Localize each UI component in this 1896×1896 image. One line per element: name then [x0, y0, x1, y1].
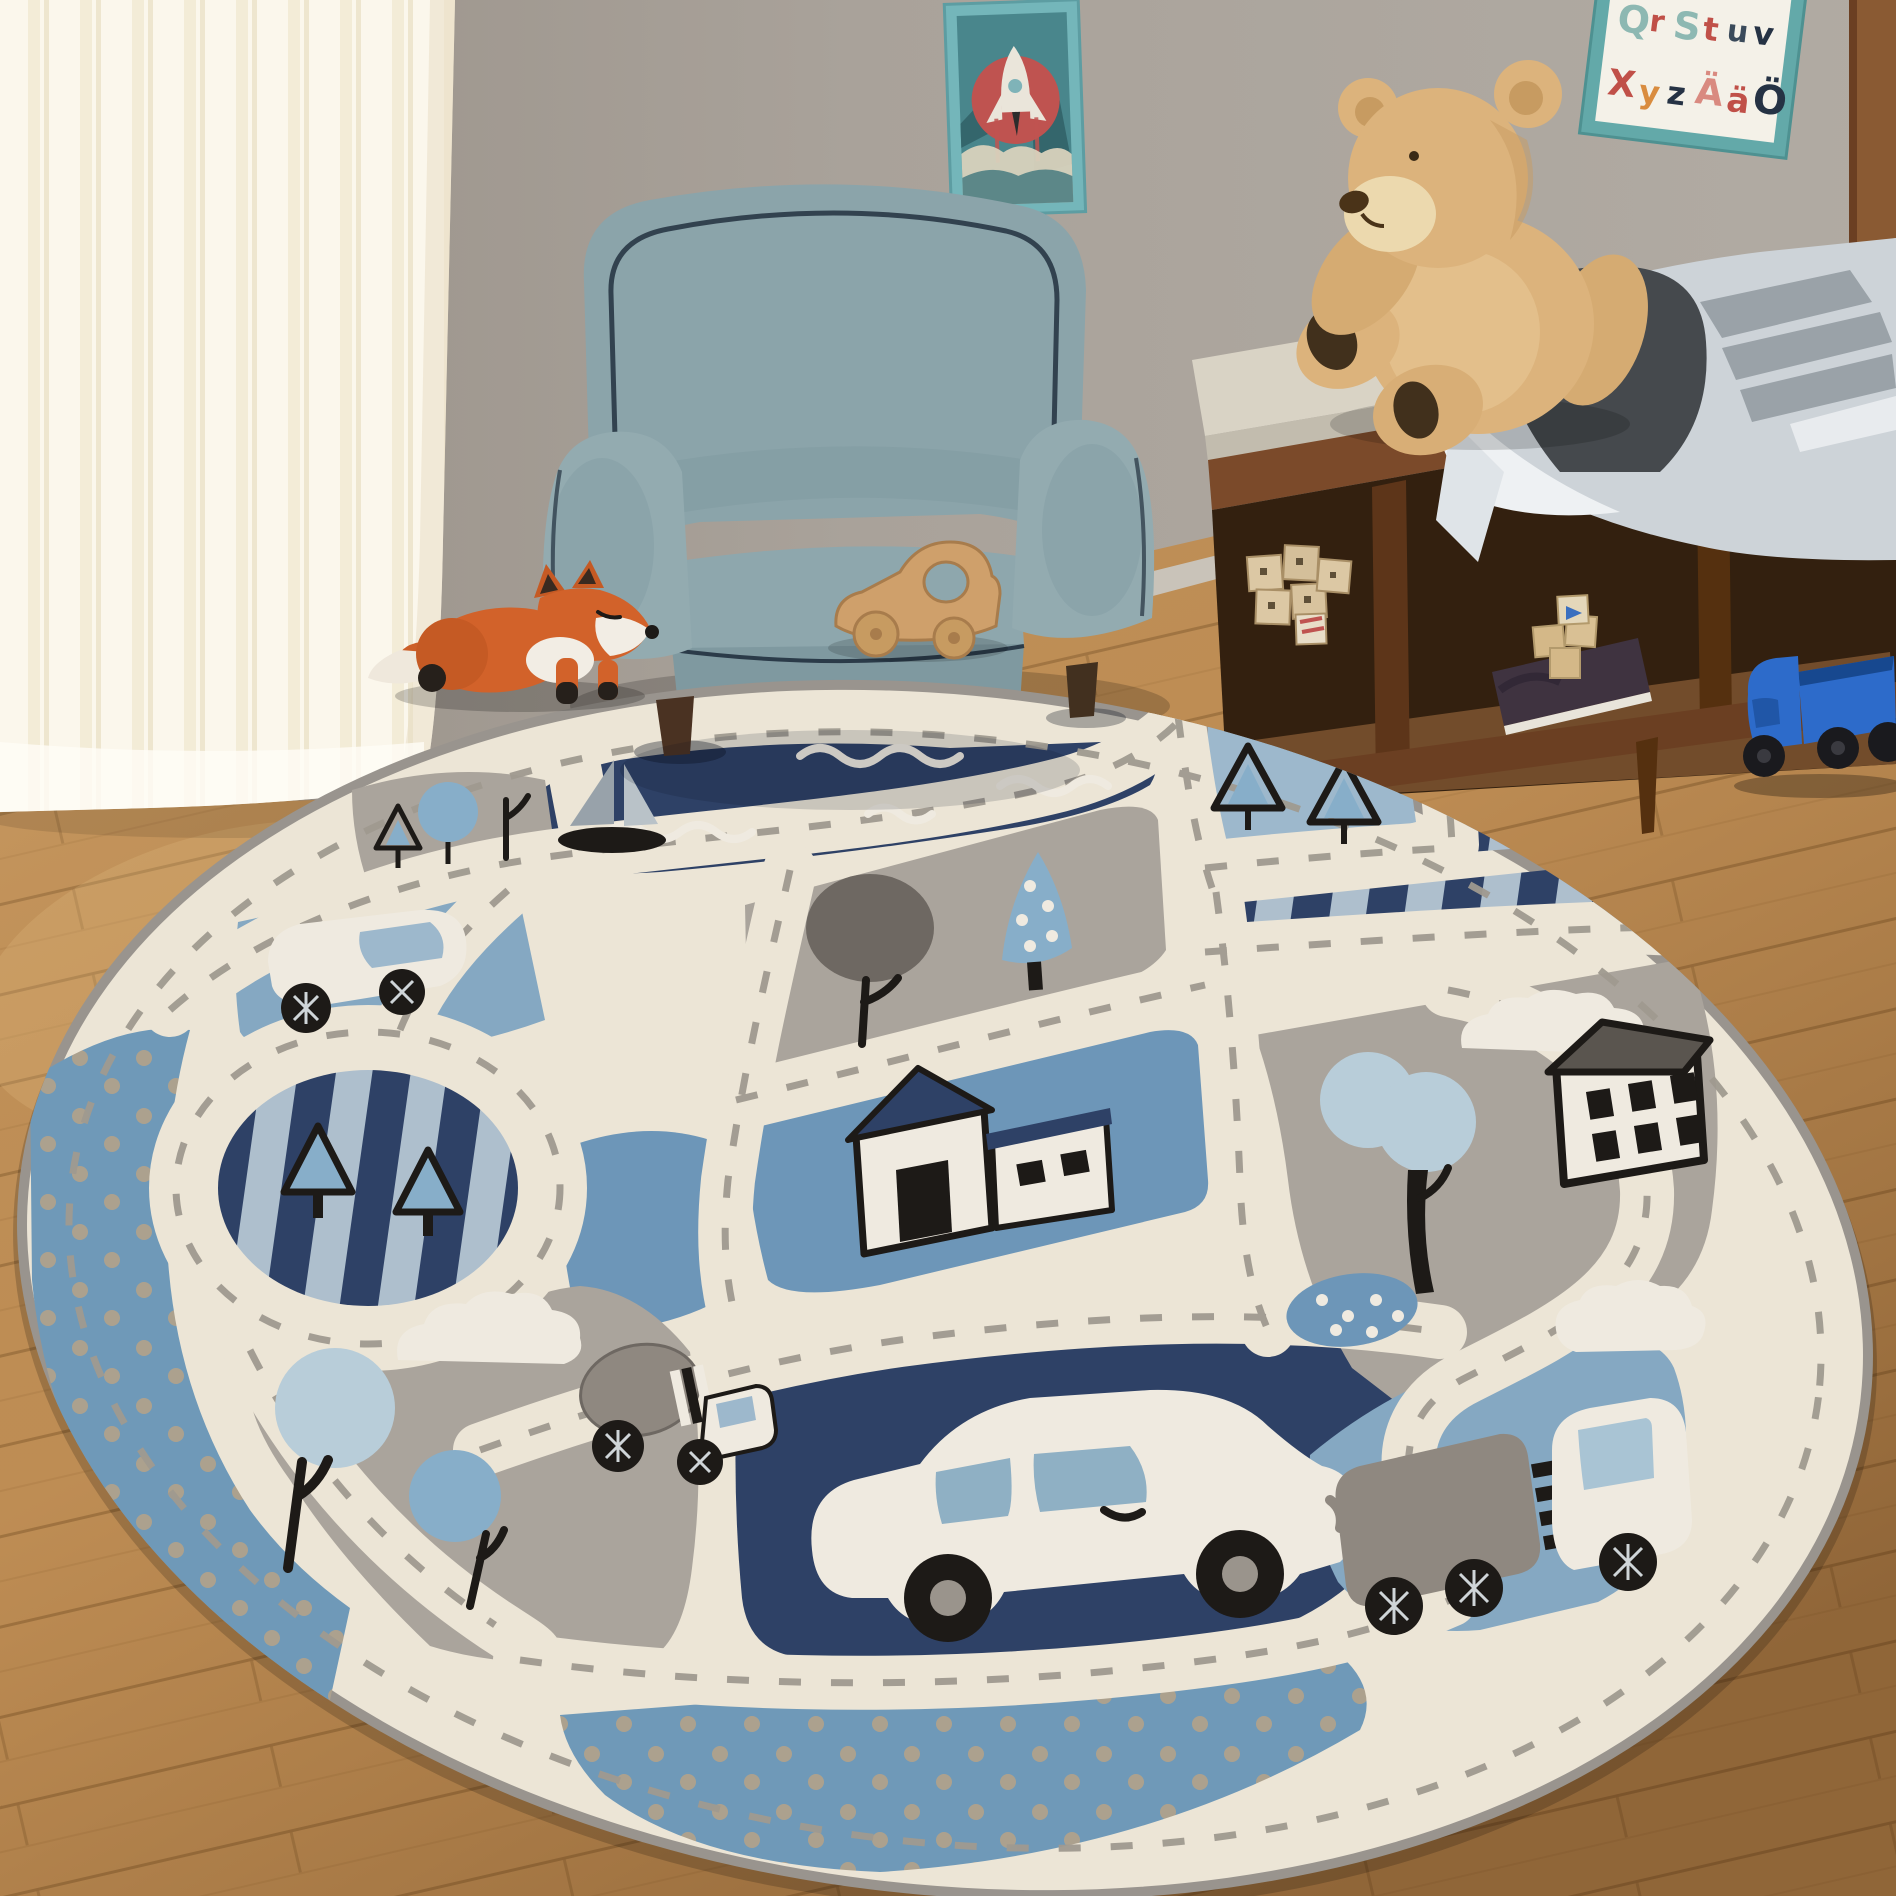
round-tree-icon — [409, 1450, 501, 1542]
alphabet-letter: ä — [1724, 80, 1752, 122]
alphabet-poster: Q r S t u v X y z Ä ä Ö — [1579, 0, 1808, 158]
sheer-curtain — [0, 0, 465, 838]
bench-divider — [1372, 480, 1410, 782]
alphabet-letter: u — [1725, 13, 1750, 50]
roundabout — [218, 1070, 518, 1306]
armchair-foot — [1066, 662, 1098, 718]
playroom-photo: Q r S t u v X y z Ä ä Ö — [0, 0, 1896, 1896]
round-tree-icon — [275, 1348, 395, 1468]
rocket-poster — [944, 0, 1085, 216]
fox-nose — [645, 625, 659, 639]
teddy-eye — [1409, 151, 1419, 161]
round-tree-icon — [418, 782, 478, 842]
alphabet-letter: Ö — [1750, 74, 1790, 126]
house-icon — [1548, 1022, 1710, 1184]
teddy-muzzle — [1344, 176, 1436, 252]
round-tree-icon — [806, 874, 934, 982]
alphabet-letter: Ä — [1693, 70, 1726, 115]
alphabet-letter: X — [1605, 62, 1638, 106]
alphabet-letter: S — [1671, 3, 1704, 50]
